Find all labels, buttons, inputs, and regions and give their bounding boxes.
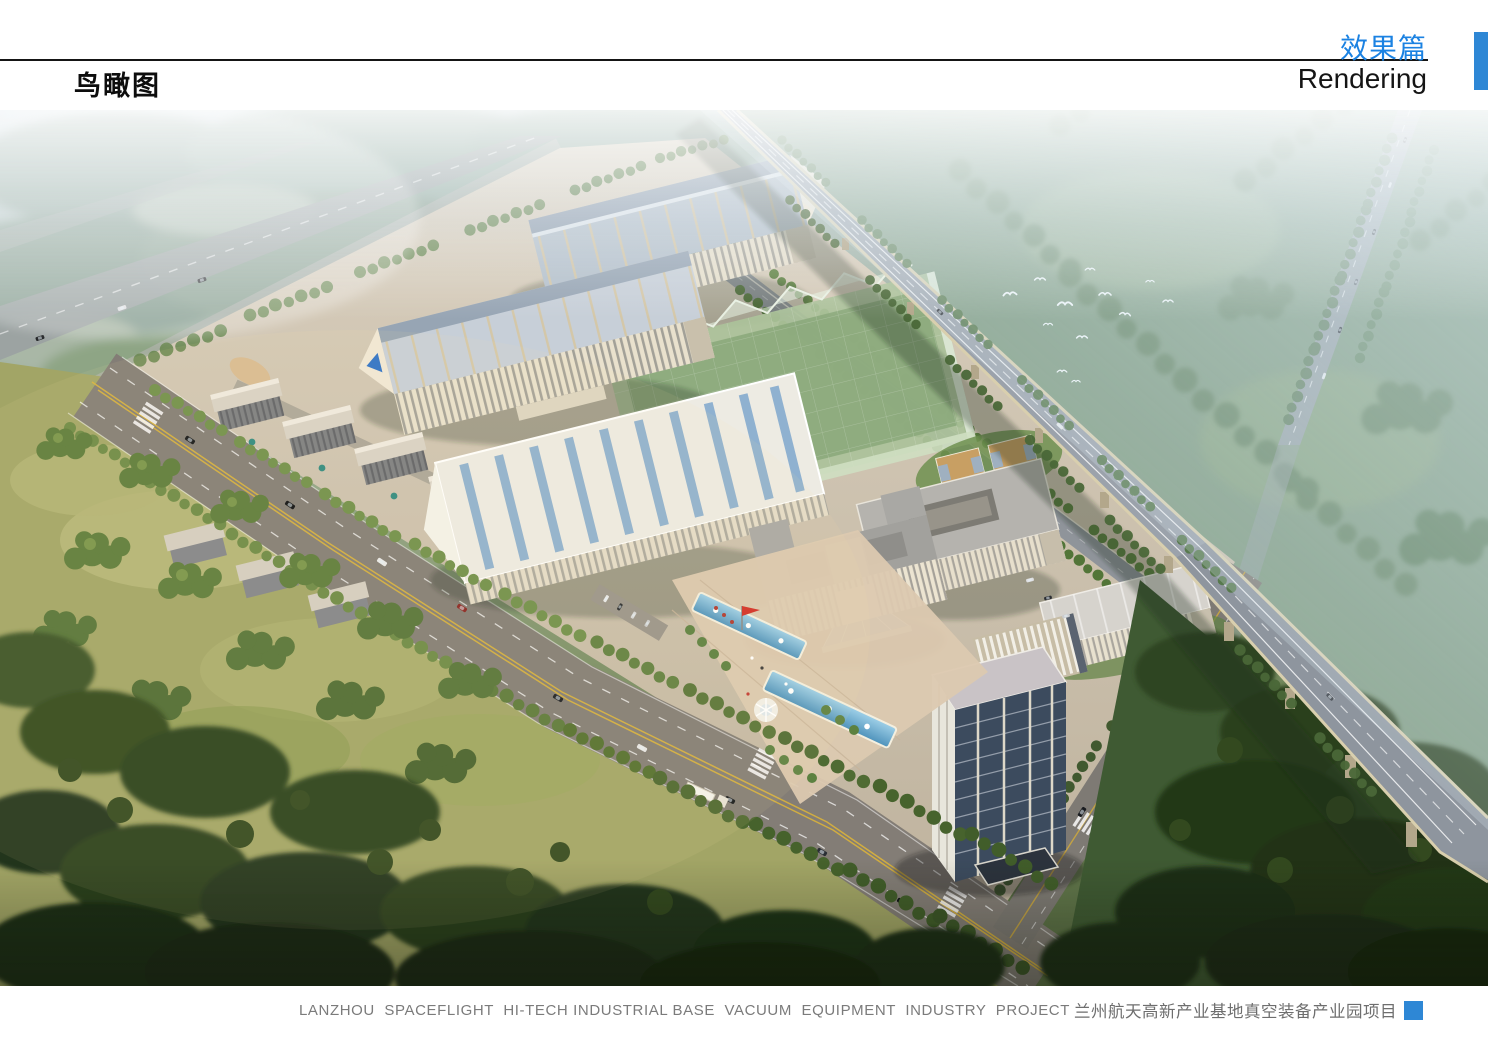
caption-blue-square-icon xyxy=(1404,1001,1423,1020)
section-title-en: Rendering xyxy=(1298,63,1427,95)
caption-english: LANZHOU SPACEFLIGHT HI-TECH INDUSTRIAL B… xyxy=(299,1002,1070,1019)
header-rule xyxy=(0,59,1428,61)
aerial-rendering-svg xyxy=(0,110,1488,986)
page-title: 鸟瞰图 xyxy=(74,64,161,103)
bottom-vignette xyxy=(0,860,1488,986)
footer-caption: LANZHOU SPACEFLIGHT HI-TECH INDUSTRIAL B… xyxy=(299,998,1423,1022)
section-title-zh: 效果篇 xyxy=(1340,27,1427,67)
header-blue-tab xyxy=(1474,32,1488,90)
presentation-page: 鸟瞰图 效果篇 Rendering xyxy=(0,0,1488,1052)
aerial-rendering-image xyxy=(0,110,1488,986)
caption-chinese: 兰州航天高新产业基地真空装备产业园项目 xyxy=(1074,998,1397,1022)
